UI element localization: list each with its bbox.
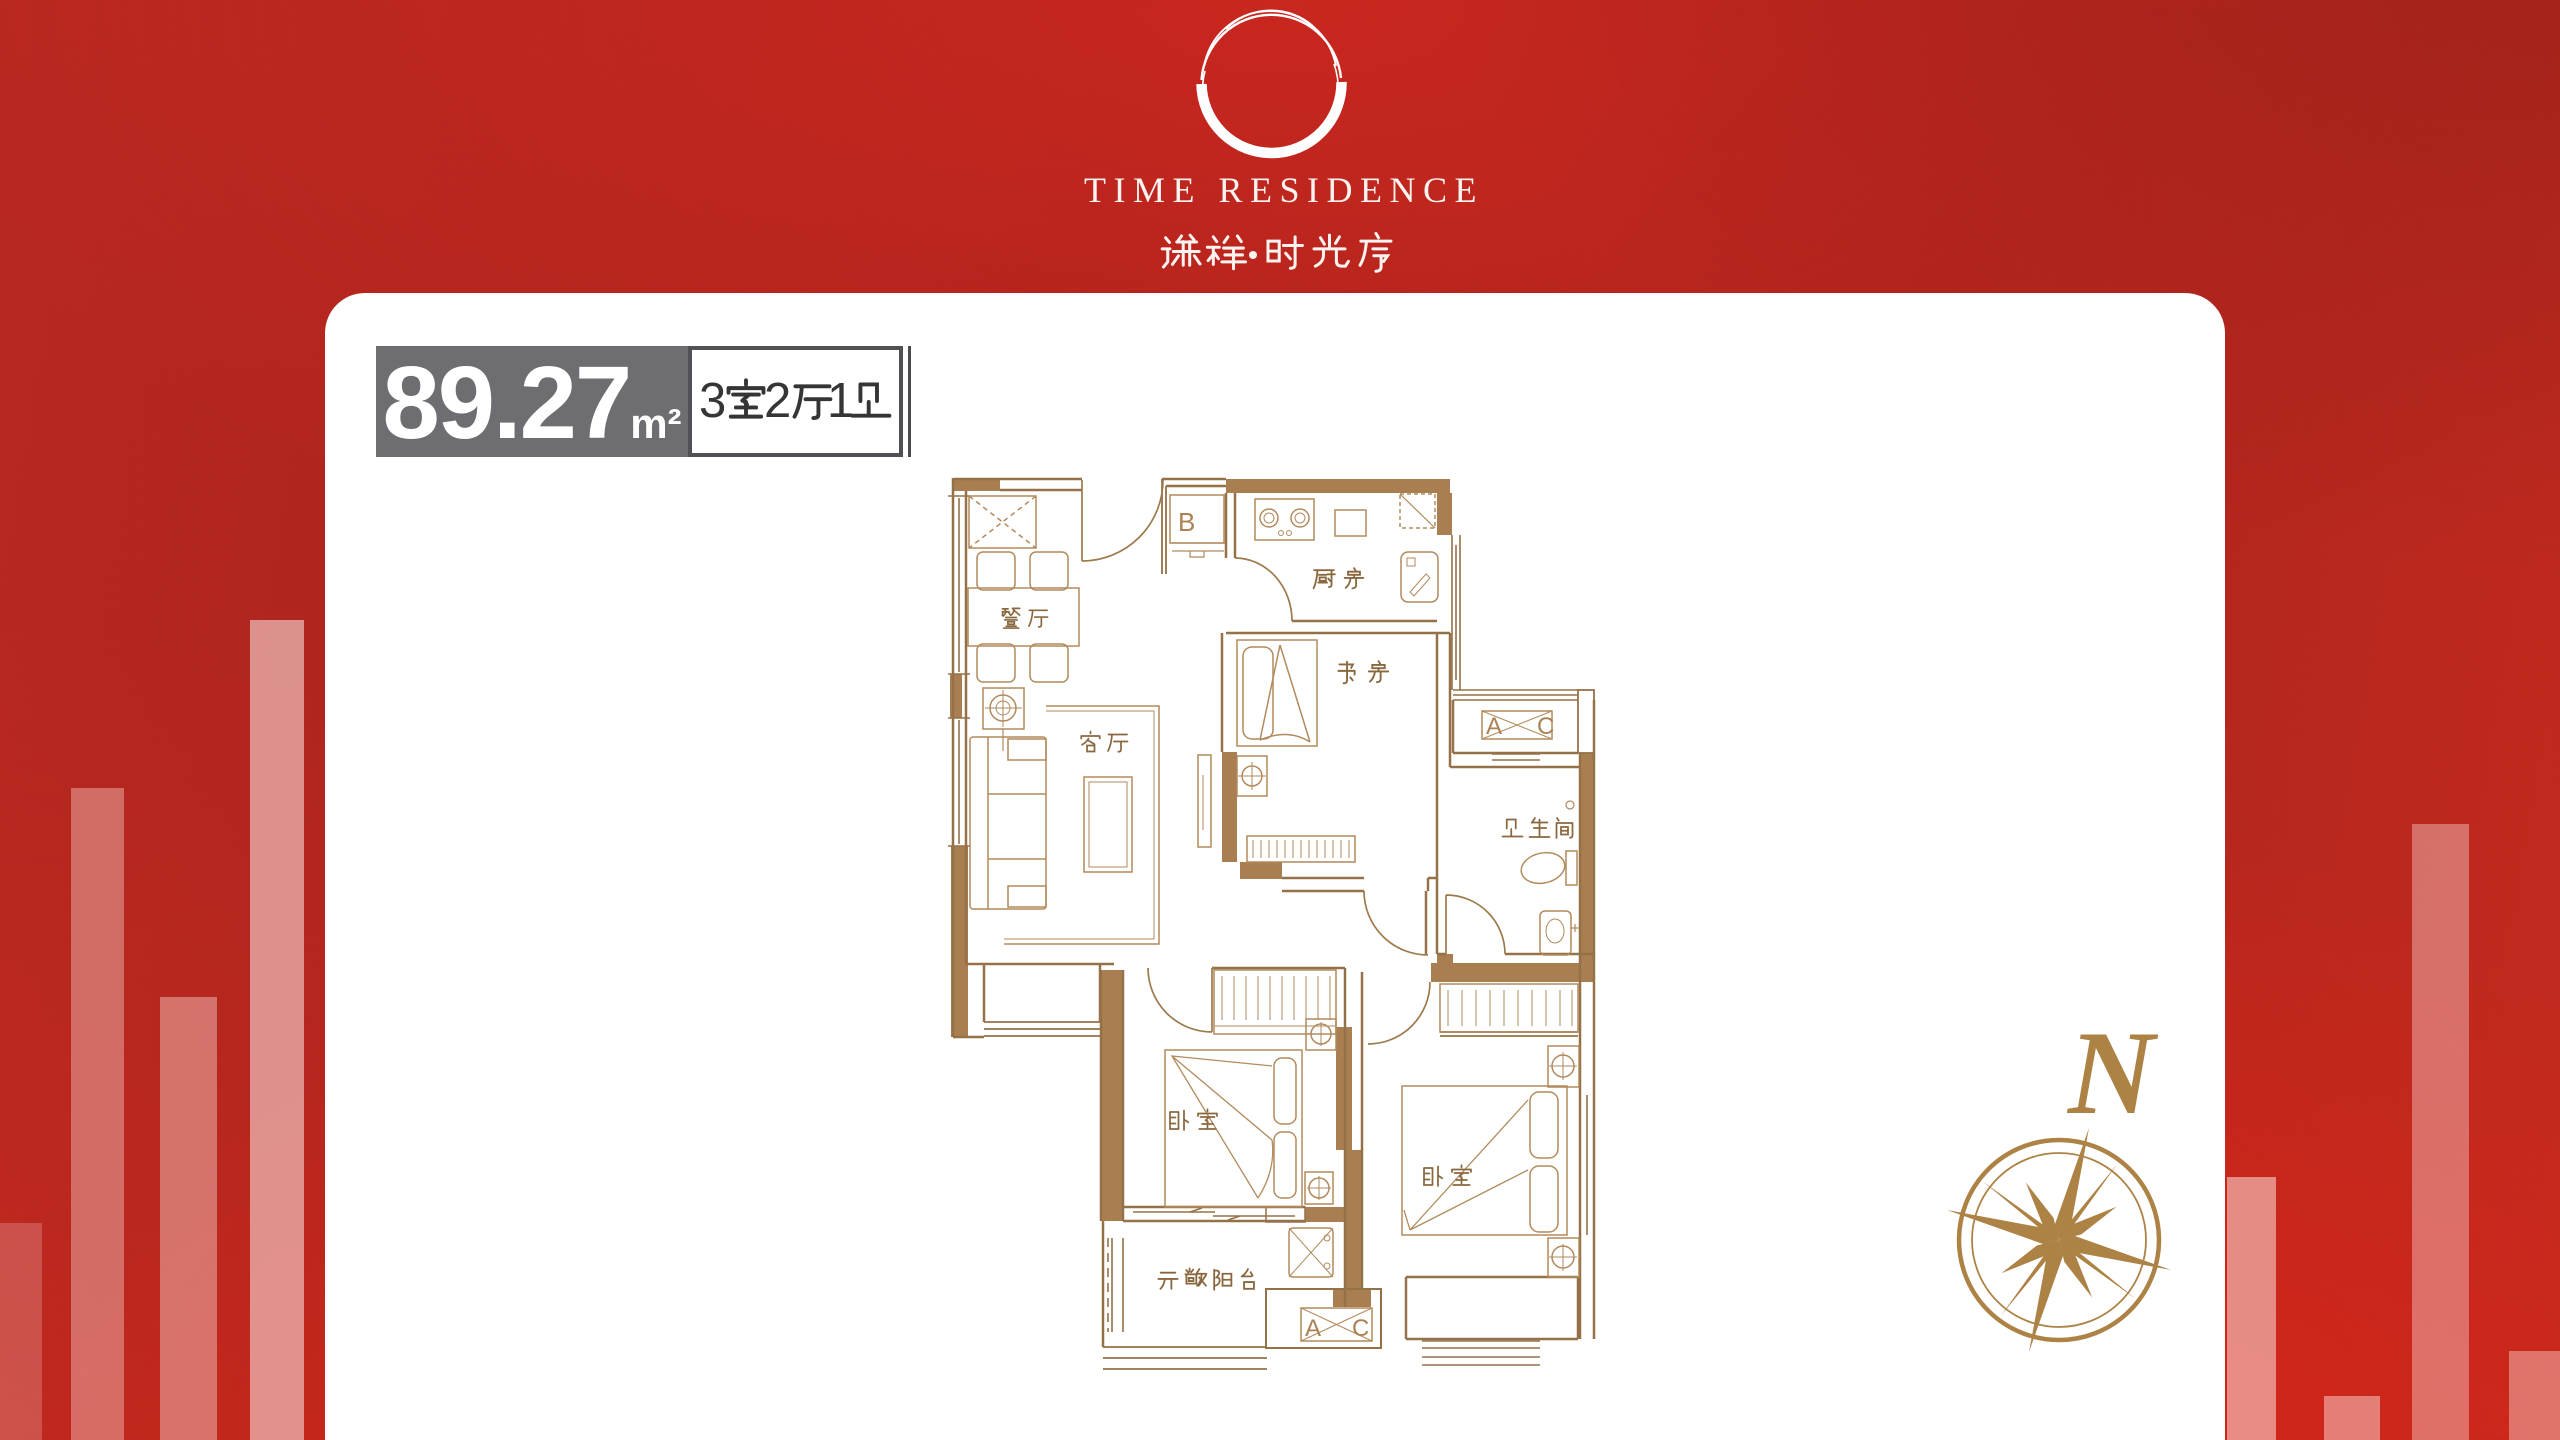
svg-text:C: C <box>1537 713 1554 740</box>
svg-text:3: 3 <box>699 374 726 428</box>
svg-text:B: B <box>1178 507 1195 537</box>
svg-text:A: A <box>1486 713 1502 740</box>
svg-text:2: 2 <box>764 374 791 428</box>
svg-text:C: C <box>1352 1315 1369 1342</box>
svg-text:A: A <box>1305 1315 1321 1342</box>
svg-text:N: N <box>2066 1010 2159 1139</box>
svg-text:1: 1 <box>827 374 854 428</box>
